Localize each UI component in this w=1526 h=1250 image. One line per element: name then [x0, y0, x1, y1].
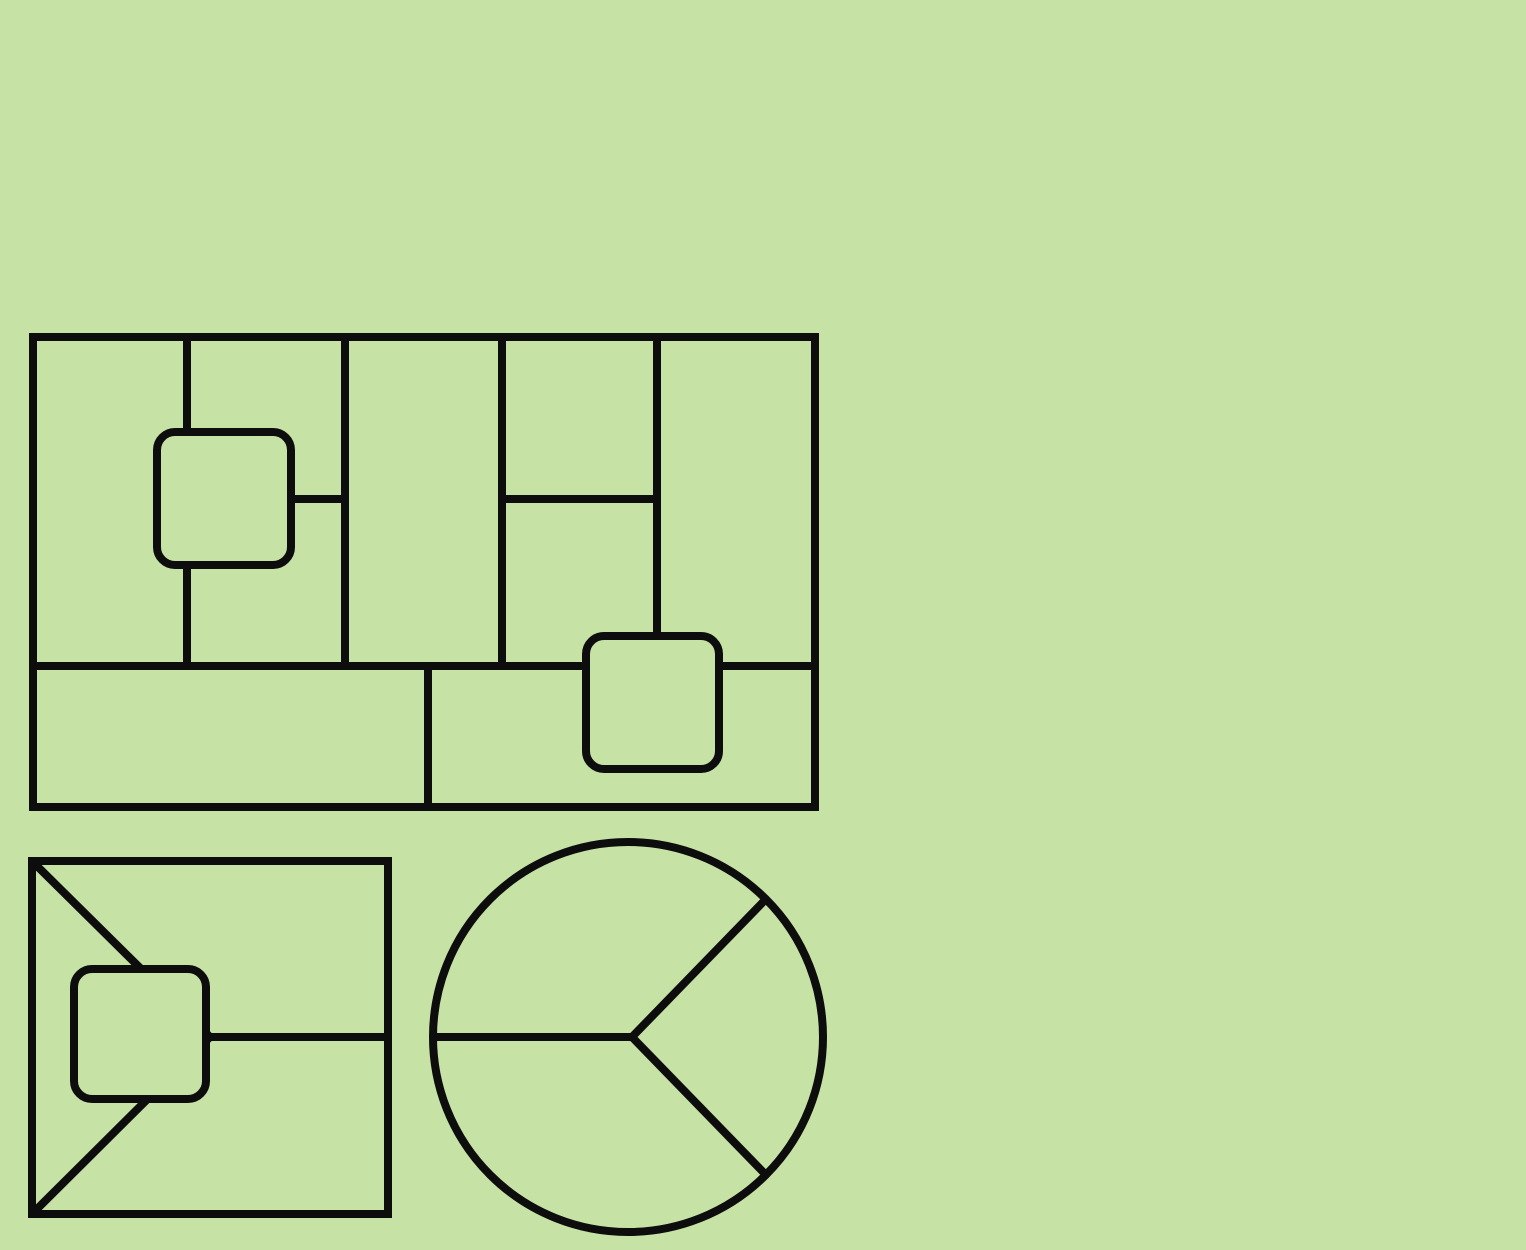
grid-node-square-2: [586, 636, 719, 769]
drawing-root: [0, 0, 1526, 1250]
canvas-background: [0, 0, 1526, 1250]
figure-canvas: [0, 0, 1526, 1250]
envelope-node-square: [74, 969, 206, 1099]
grid-node-square-1: [157, 432, 291, 565]
